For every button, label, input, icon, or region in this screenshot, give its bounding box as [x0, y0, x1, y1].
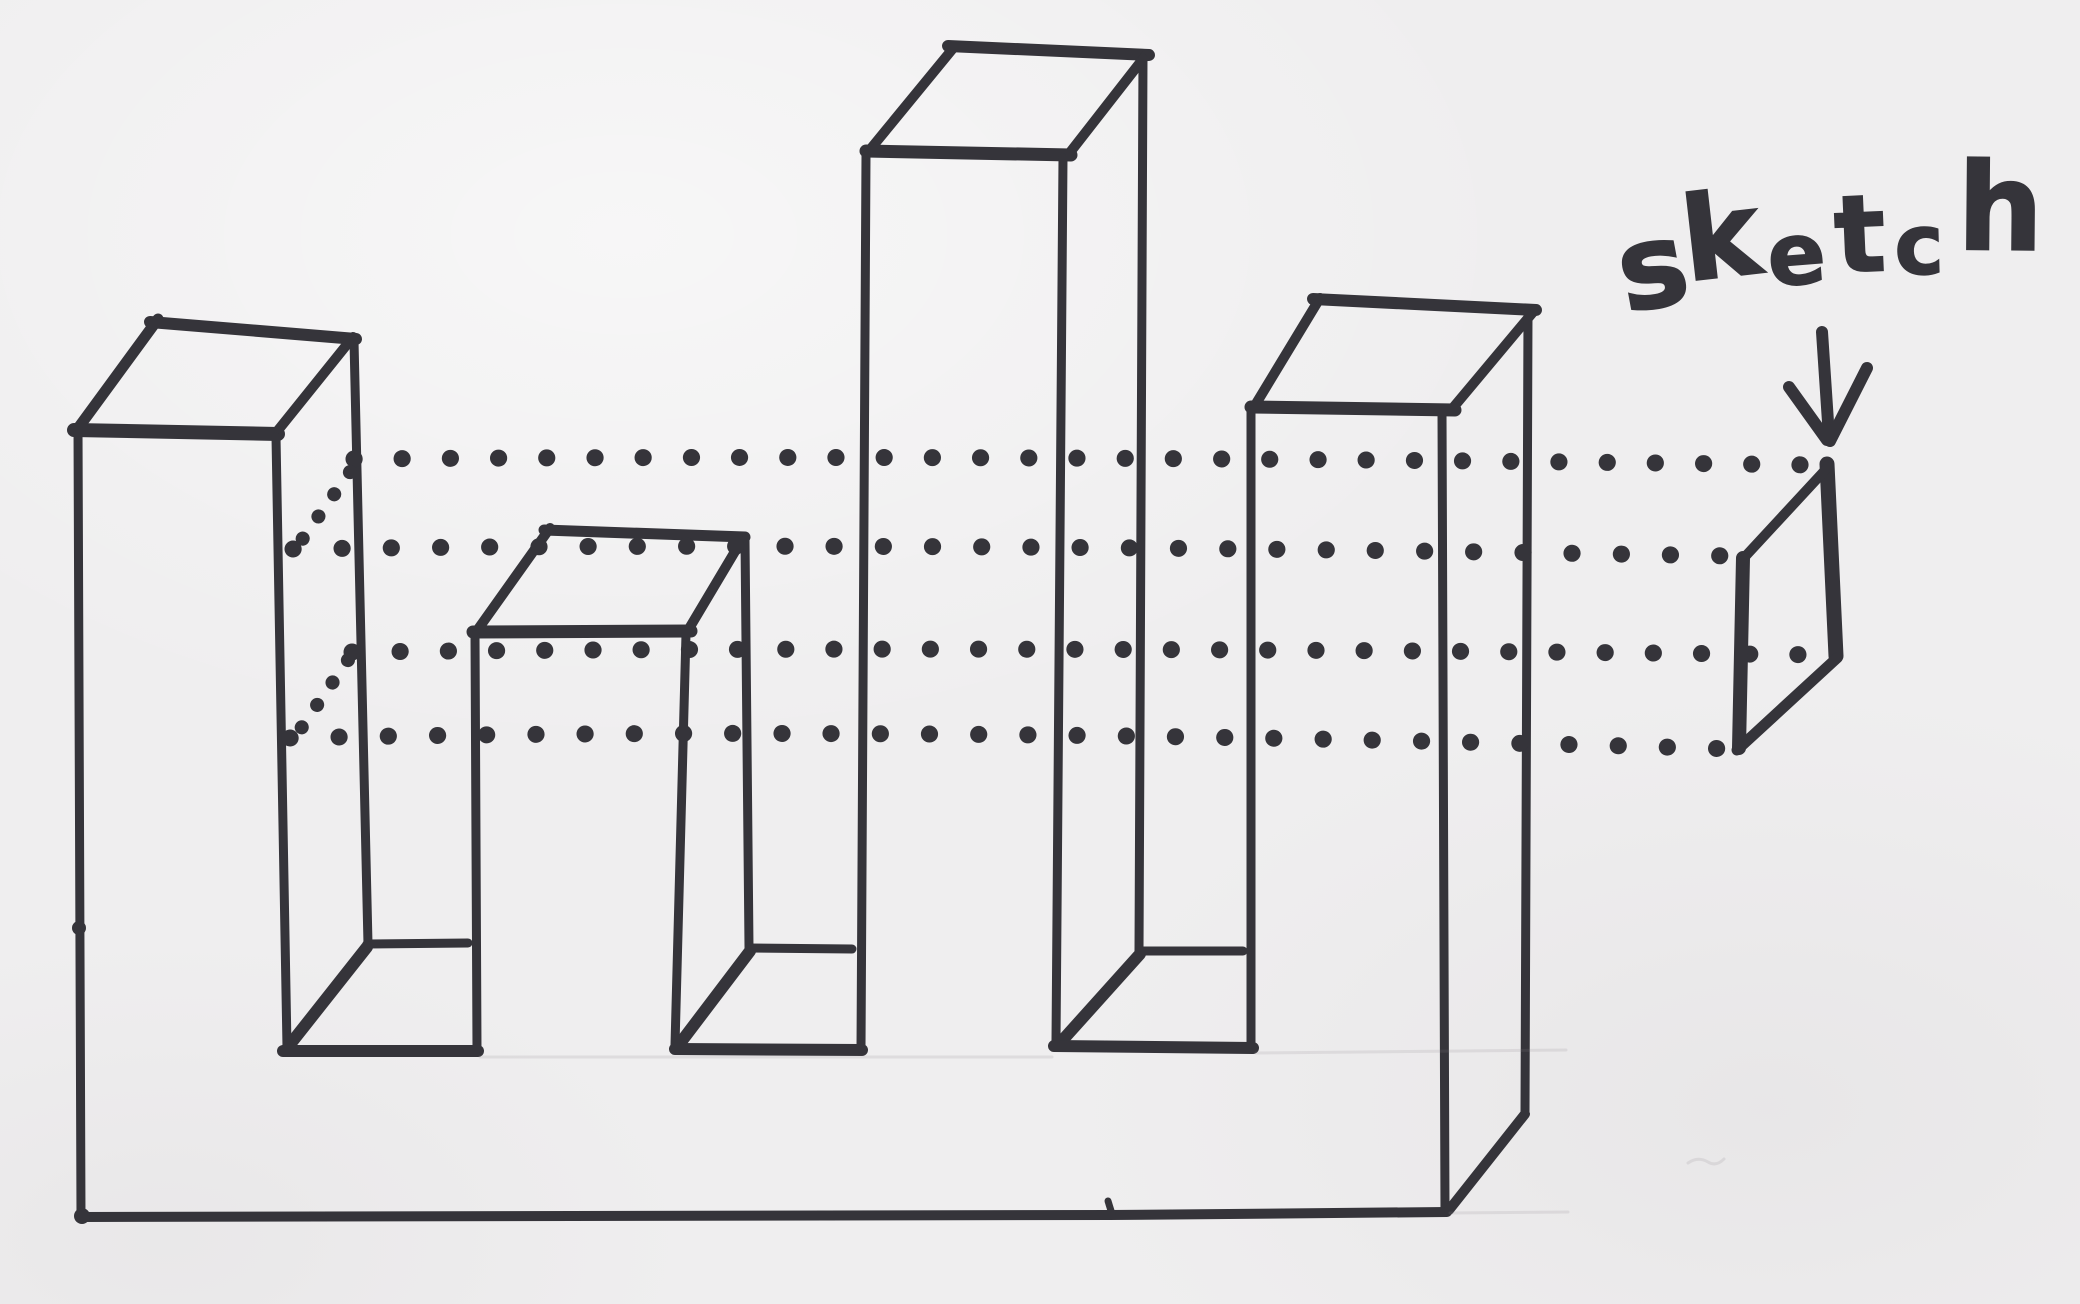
- tower-4-top-back-edge: [1313, 299, 1536, 310]
- profile-right-edge: [1827, 464, 1836, 656]
- notch-1-back-edge: [367, 943, 468, 944]
- tower-2: [473, 528, 749, 1049]
- projection-row-1: [354, 457, 1814, 465]
- tower-1-top-back-edge: [150, 322, 356, 339]
- tower-1-top-right-slant: [275, 337, 353, 434]
- tower-4-back-right-edge: [1525, 314, 1528, 1112]
- down-arrow-icon: [1789, 332, 1867, 441]
- tower-3-top-back-edge: [948, 46, 1149, 55]
- pencil-scratch: [1688, 1159, 1724, 1164]
- profile-top-edge: [1741, 467, 1828, 561]
- tower-3-back-right-edge: [1139, 58, 1143, 951]
- tower-4-top-left-slant: [1254, 298, 1320, 407]
- tower-3: [861, 46, 1149, 1048]
- scanned-paper-sketch: sketch: [0, 0, 2080, 1304]
- tower-3-top-right-slant: [1068, 55, 1146, 155]
- sketch-profile-parallelogram: [1737, 464, 1837, 750]
- base-pen-tick: [1108, 1201, 1112, 1214]
- notch-1-side-diagonal: [288, 947, 367, 1047]
- profile-left-edge: [1739, 558, 1743, 748]
- base-bottom-right-diagonal: [1449, 1114, 1525, 1210]
- pencil-guide-line: [1450, 1212, 1568, 1213]
- tower-4: [1251, 298, 1536, 1212]
- pencil-guides: [480, 1050, 1724, 1213]
- tower-4-top-right-slant: [1452, 311, 1534, 409]
- projection-row-3: [352, 649, 1830, 655]
- tower-2-front-right-edge: [675, 634, 686, 1045]
- tower-2-front-left-edge: [475, 635, 477, 1049]
- projection-row-4: [290, 733, 1735, 749]
- tower-2-back-right-edge: [745, 540, 749, 947]
- tower-1-front-left-edge: [78, 428, 81, 1216]
- tower-4-top-front-edge: [1251, 407, 1455, 410]
- base-bottom-front-edge: [81, 1212, 1447, 1217]
- sketch-label: sketch: [1613, 160, 2045, 336]
- projection-row-2: [293, 546, 1732, 556]
- ink-blob-corner: [74, 1208, 90, 1224]
- tower-2-top-front-edge: [473, 631, 691, 632]
- pencil-guide-line: [1256, 1050, 1566, 1053]
- notch-2-front-edge: [675, 1049, 862, 1050]
- projection-diagonal-bottom: [293, 660, 348, 740]
- tower-3-top-front-edge: [866, 151, 1071, 155]
- tower-1-back-right-edge: [354, 341, 368, 944]
- tower-4-front-right-edge: [1442, 412, 1445, 1212]
- tower-2-top-back-edge: [544, 530, 745, 537]
- tower-1-top-front-edge: [74, 430, 278, 434]
- notch-3-bottom: [1054, 951, 1253, 1048]
- arrow-shaft: [1822, 332, 1829, 437]
- notch-3-side-diagonal: [1060, 954, 1140, 1043]
- projection-diagonal-top: [296, 472, 350, 548]
- arrow-right-wing: [1830, 368, 1867, 441]
- tower-3-top-left-slant: [868, 46, 955, 152]
- tower-1-top-left-slant: [76, 319, 158, 431]
- notch-2-back-edge: [749, 948, 852, 949]
- tower-3-front-right-edge: [1056, 158, 1063, 1041]
- notch-2-side-diagonal: [678, 951, 750, 1046]
- notch-3-front-edge: [1054, 1046, 1253, 1048]
- notch-2-bottom: [675, 948, 862, 1050]
- tower-3-front-left-edge: [861, 155, 866, 1048]
- profile-bottom-edge: [1737, 658, 1837, 750]
- ink-blob: [72, 921, 86, 935]
- tower-1: [74, 319, 368, 1216]
- notch-1-bottom: [283, 943, 478, 1051]
